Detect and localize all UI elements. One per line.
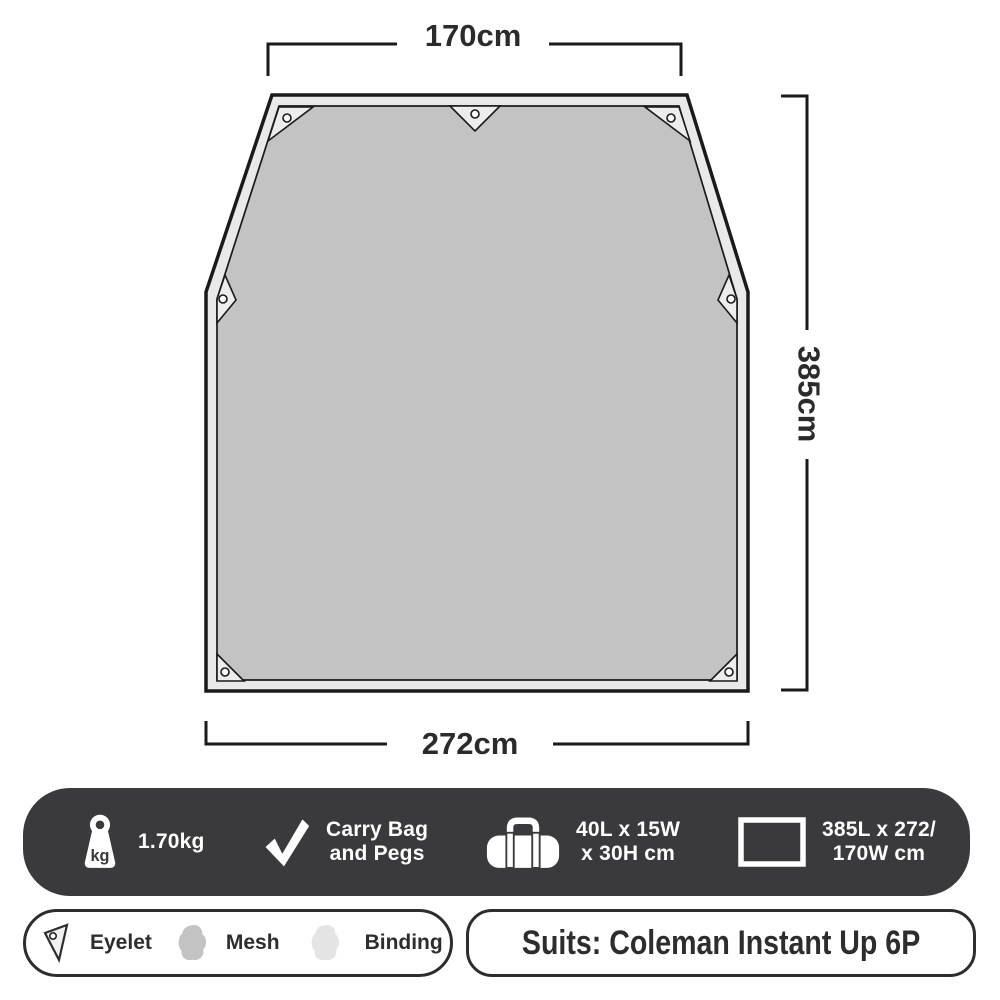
suits-box: Suits: Coleman Instant Up 6P bbox=[466, 909, 976, 977]
packed-size-label: 40L x 15W x 30H cm bbox=[576, 818, 680, 867]
spec-item-weight: kg 1.70kg bbox=[78, 788, 205, 896]
included-line1: Carry Bag bbox=[326, 818, 428, 842]
tarp-diagram: 170cm 385cm 272cm bbox=[0, 0, 1000, 780]
flat-size-line1: 385L x 272/ bbox=[822, 818, 936, 842]
legend-eyelet-label: Eyelet bbox=[90, 931, 152, 955]
side-dimension-label: 385cm bbox=[792, 346, 827, 443]
tarp-fabric bbox=[217, 106, 737, 680]
duffel-bag-icon bbox=[486, 814, 560, 870]
included-label: Carry Bag and Pegs bbox=[326, 818, 428, 867]
spec-bar: kg 1.70kg Carry Bag and Pegs 40L x 15W bbox=[23, 788, 970, 896]
legend-mesh-label: Mesh bbox=[226, 931, 280, 955]
weight-kg-icon: kg bbox=[78, 813, 122, 871]
flat-size-label: 385L x 272/ 170W cm bbox=[822, 818, 936, 867]
spec-item-included: Carry Bag and Pegs bbox=[263, 788, 428, 896]
groundsheet-product-diagram: 170cm 385cm 272cm kg 1.70kg bbox=[0, 0, 1000, 1000]
packed-line2: x 30H cm bbox=[576, 842, 680, 866]
spec-item-packed-size: 40L x 15W x 30H cm bbox=[486, 788, 680, 896]
eyelet-triangle-icon bbox=[42, 923, 70, 963]
legend-binding-label: Binding bbox=[365, 931, 443, 955]
binding-swatch-icon bbox=[309, 922, 341, 964]
legend-pill: Eyelet Mesh Binding bbox=[23, 909, 453, 977]
flat-size-line2: 170W cm bbox=[822, 842, 936, 866]
eyelet-hole bbox=[283, 114, 291, 122]
eyelet-hole bbox=[471, 110, 479, 118]
bottom-dimension-label: 272cm bbox=[422, 726, 519, 761]
check-icon bbox=[263, 815, 310, 869]
suits-label: Suits: Coleman Instant Up 6P bbox=[522, 924, 920, 963]
eyelet-hole bbox=[727, 295, 735, 303]
included-line2: and Pegs bbox=[326, 842, 428, 866]
weight-unit-glyph: kg bbox=[91, 847, 110, 865]
eyelet-hole bbox=[667, 114, 675, 122]
eyelet-hole bbox=[219, 295, 227, 303]
packed-line1: 40L x 15W bbox=[576, 818, 680, 842]
mesh-swatch-icon bbox=[176, 922, 208, 964]
spec-item-flat-size: 385L x 272/ 170W cm bbox=[738, 788, 936, 896]
rectangle-outline-icon bbox=[738, 817, 806, 867]
weight-value: 1.70kg bbox=[138, 830, 205, 854]
eyelet-hole bbox=[221, 668, 229, 676]
eyelet-hole bbox=[725, 668, 733, 676]
top-dimension-label: 170cm bbox=[425, 18, 522, 53]
